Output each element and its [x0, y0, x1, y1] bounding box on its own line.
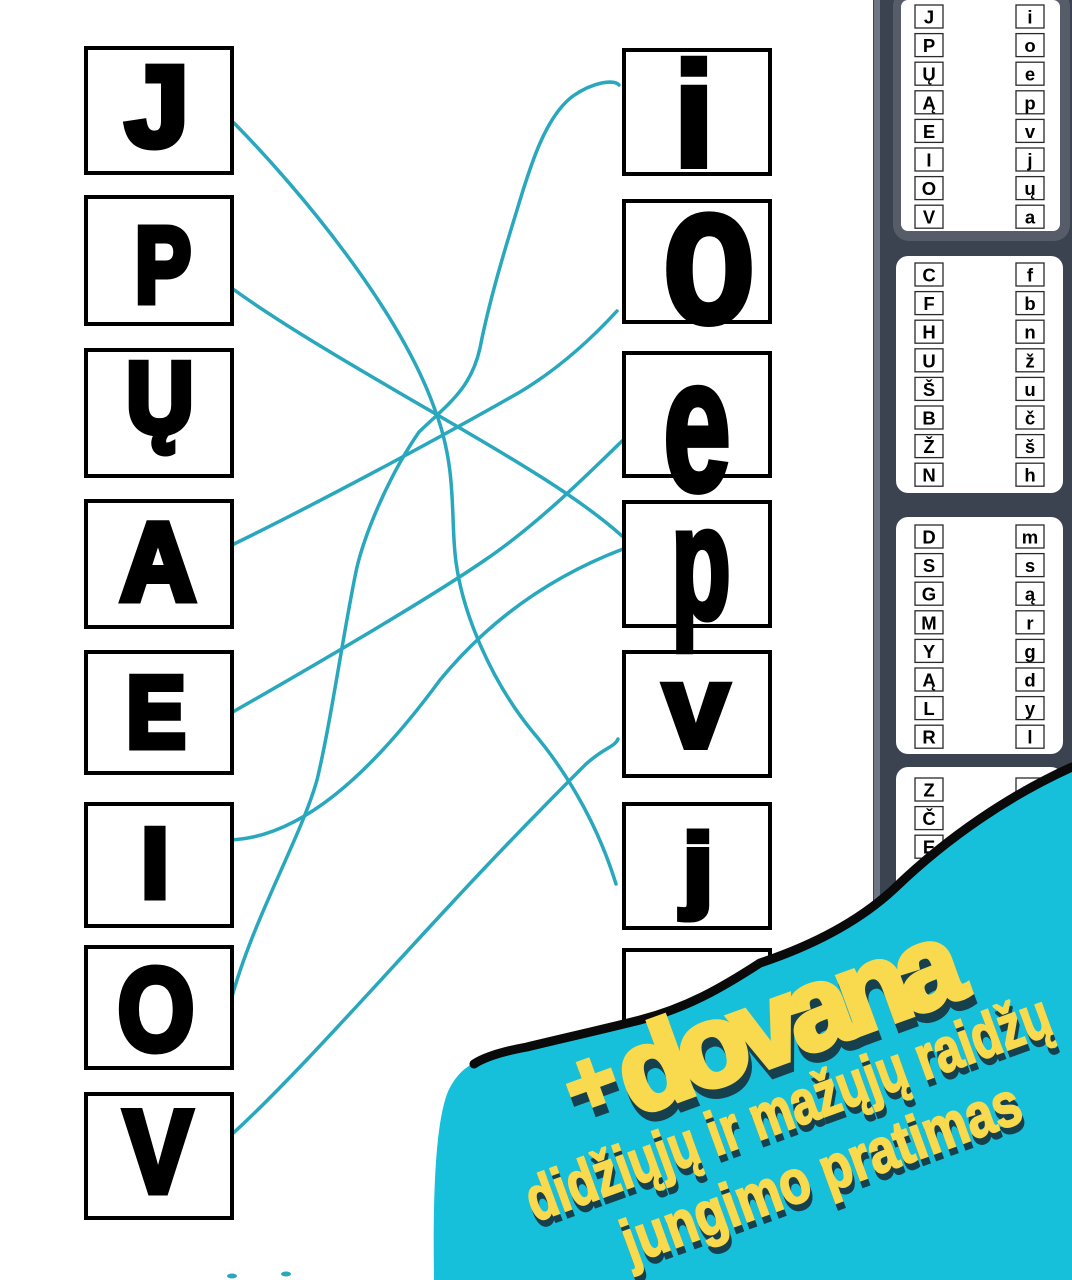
svg-text:g: g — [1024, 641, 1035, 662]
svg-text:N: N — [922, 465, 935, 486]
svg-text:E: E — [126, 657, 185, 770]
svg-text:r: r — [1026, 612, 1033, 633]
svg-text:ą: ą — [1025, 584, 1036, 605]
svg-text:J: J — [125, 44, 188, 171]
svg-text:G: G — [922, 584, 936, 605]
svg-text:L: L — [923, 698, 934, 719]
svg-text:U: U — [922, 350, 935, 371]
svg-text:Ą: Ą — [922, 670, 935, 691]
svg-text:O: O — [118, 944, 194, 1075]
svg-text:j: j — [1026, 150, 1032, 171]
svg-text:m: m — [1022, 527, 1038, 548]
svg-text:E: E — [923, 121, 935, 142]
svg-text:S: S — [923, 555, 935, 576]
svg-text:H: H — [922, 322, 935, 343]
svg-text:f: f — [1027, 265, 1034, 286]
svg-text:Ą: Ą — [922, 92, 935, 113]
svg-text:v: v — [663, 641, 729, 773]
svg-text:b: b — [1024, 293, 1035, 314]
svg-text:M: M — [921, 612, 936, 633]
svg-text:Ų: Ų — [126, 343, 193, 454]
svg-text:I: I — [141, 808, 168, 918]
svg-text:e: e — [1025, 64, 1035, 85]
svg-text:V: V — [124, 1087, 192, 1217]
svg-text:P: P — [135, 204, 191, 326]
svg-text:B: B — [922, 408, 935, 429]
svg-text:y: y — [1025, 698, 1036, 719]
svg-text:v: v — [1025, 121, 1036, 142]
svg-text:o: o — [1024, 35, 1035, 56]
svg-text:O: O — [922, 178, 936, 199]
svg-text:Ų: Ų — [922, 64, 935, 85]
svg-text:J: J — [924, 7, 934, 28]
svg-text:p: p — [671, 474, 731, 653]
svg-text:D: D — [922, 527, 935, 548]
svg-text:u: u — [1024, 379, 1035, 400]
svg-text:R: R — [922, 727, 935, 748]
svg-text:n: n — [1024, 322, 1035, 343]
svg-text:C: C — [922, 265, 935, 286]
svg-text:ž: ž — [1025, 350, 1034, 371]
svg-text:A: A — [120, 501, 195, 624]
svg-text:Č: Č — [922, 808, 935, 829]
svg-text:l: l — [1027, 727, 1032, 748]
svg-text:a: a — [1025, 207, 1036, 228]
svg-text:I: I — [926, 150, 931, 171]
svg-text:Y: Y — [923, 641, 936, 662]
svg-text:P: P — [923, 35, 935, 56]
svg-text:d: d — [1024, 670, 1035, 691]
svg-text:Š: Š — [923, 379, 935, 400]
svg-text:Z: Z — [923, 780, 934, 801]
svg-text:ų: ų — [1024, 178, 1035, 199]
svg-text:č: č — [1025, 408, 1035, 429]
svg-text:š: š — [1025, 436, 1035, 457]
svg-text:V: V — [923, 207, 936, 228]
svg-text:j: j — [680, 815, 713, 921]
svg-text:F: F — [923, 293, 934, 314]
svg-text:h: h — [1024, 465, 1035, 486]
svg-text:i: i — [1027, 7, 1032, 28]
svg-text:p: p — [1024, 92, 1035, 113]
svg-text:Ž: Ž — [923, 436, 934, 457]
svg-text:s: s — [1025, 555, 1035, 576]
